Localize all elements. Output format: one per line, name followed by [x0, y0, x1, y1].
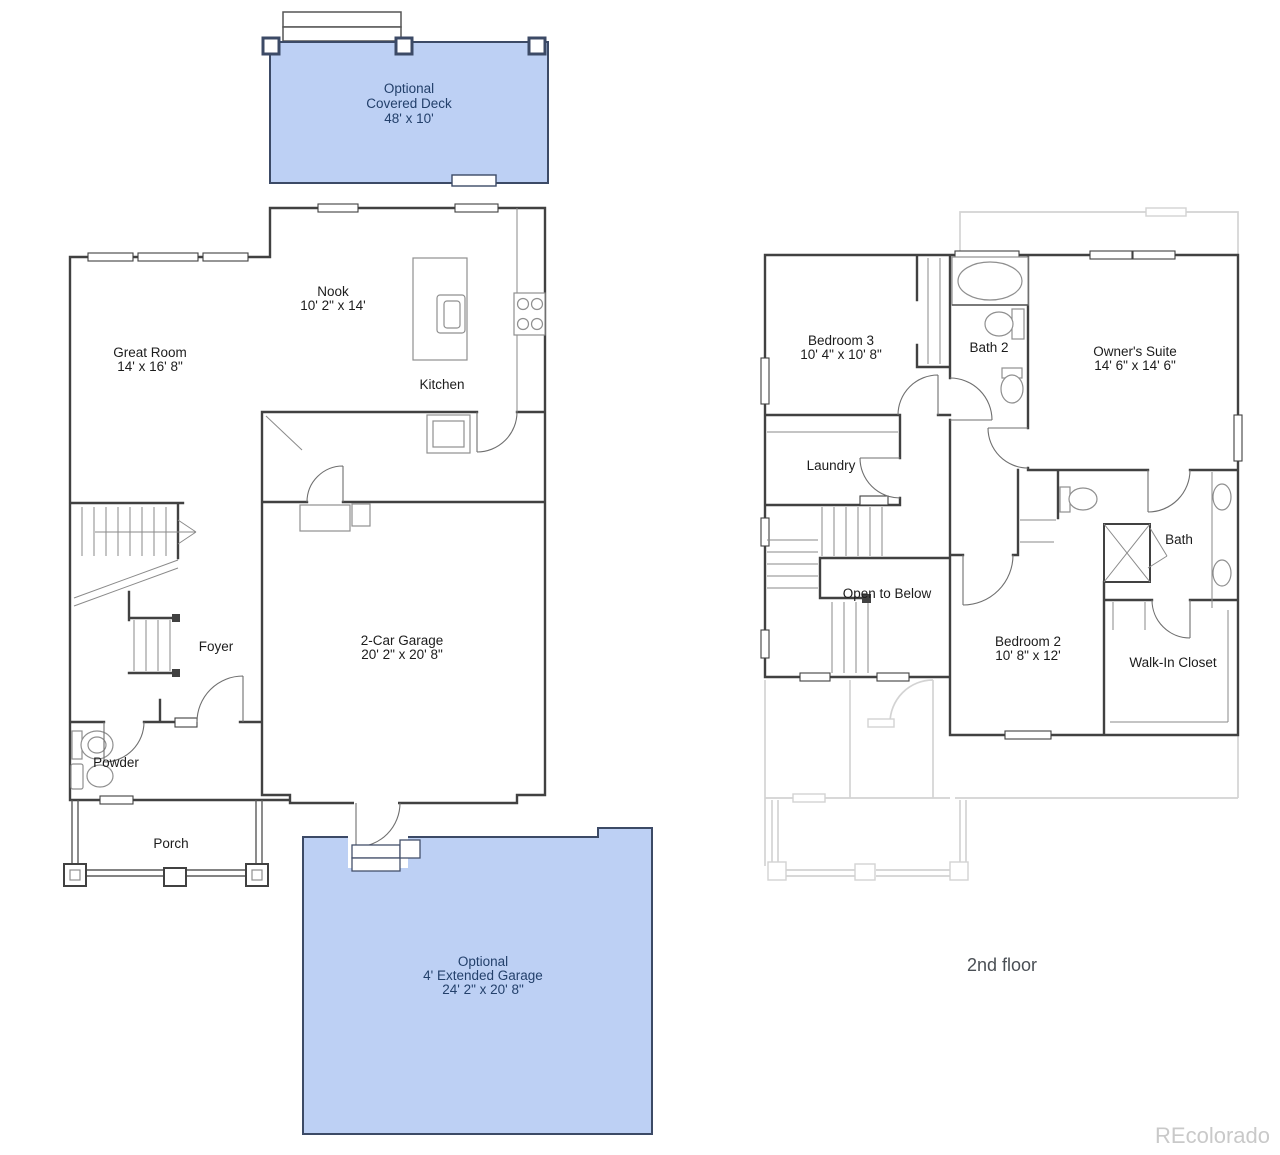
mud-hall [266, 415, 470, 531]
bedroom2-dims: 10' 8" x 12' [995, 648, 1061, 663]
second-floor-caption: 2nd floor [967, 955, 1037, 975]
garage-step [400, 840, 420, 858]
walk-in-closet-door-swing [1152, 600, 1190, 638]
deck-post-icon [263, 38, 279, 54]
watermark: REcolorado [1155, 1123, 1270, 1148]
bathtub-icon [952, 257, 1028, 305]
porch-post-icon [246, 864, 268, 886]
mud-door-swing [477, 412, 517, 452]
window-icon [877, 673, 909, 681]
window-icon [761, 518, 769, 546]
foyer-label: Foyer [199, 639, 234, 654]
owners-suite-label: Owner's Suite [1093, 344, 1177, 359]
owners-suite-dims: 14' 6" x 14' 6" [1094, 358, 1176, 373]
window-icon [1133, 251, 1175, 259]
first-floor-doors [104, 412, 517, 762]
first-floor-plan: Optional Covered Deck 48' x 10' Great Ro… [64, 12, 652, 1134]
sink-icon [71, 764, 83, 789]
porch-label: Porch [153, 836, 188, 851]
garage-dims: 20' 2" x 20' 8" [361, 647, 443, 662]
floor-plan-image: Optional Covered Deck 48' x 10' Great Ro… [0, 0, 1280, 1155]
laundry-threshold [860, 496, 888, 505]
garage-label: 2-Car Garage [361, 633, 444, 648]
bedroom2-label: Bedroom 2 [995, 634, 1061, 649]
window-icon [800, 673, 830, 681]
laundry-label: Laundry [807, 458, 856, 473]
porch-post-icon [64, 864, 86, 886]
water-heater-icon [352, 504, 370, 526]
deck-label-line1: Optional [384, 81, 434, 96]
extended-garage-dims: 24' 2" x 20' 8" [442, 982, 524, 997]
bath2-door-swing [950, 378, 992, 420]
bath-label: Bath [1165, 532, 1193, 547]
ghost-porch-step [855, 864, 875, 880]
bath2-fixtures [952, 257, 1028, 403]
window-icon [1090, 251, 1132, 259]
owners-bath-door-swing [1148, 470, 1190, 512]
deck-post-icon [396, 38, 412, 54]
bedroom3-label: Bedroom 3 [808, 333, 874, 348]
deck-stairs [283, 12, 401, 41]
sink-icon [1213, 484, 1231, 510]
deck-label-line2: Covered Deck [366, 96, 452, 111]
ghost-porch-post [768, 862, 786, 880]
window-icon [1005, 731, 1051, 739]
window-icon [203, 253, 248, 261]
front-door-threshold [175, 718, 197, 727]
laundry-door-swing [860, 458, 900, 498]
bedroom2-door-swing [963, 555, 1013, 605]
shower-fixture [1104, 524, 1167, 582]
furnace-icon [300, 505, 350, 531]
window-icon [761, 358, 769, 404]
extended-garage-label-line2: 4' Extended Garage [423, 968, 543, 983]
front-door-swing [197, 676, 243, 722]
stair-direction-arrow [95, 520, 196, 544]
second-floor-plan: Bedroom 3 10' 4" x 10' 8" Bath 2 Owner's… [761, 208, 1242, 975]
nook-dims: 10' 2" x 14' [300, 298, 366, 313]
owners-suite-door-swing [988, 428, 1028, 468]
sink-icon [1213, 560, 1231, 586]
toilet-icon [1012, 309, 1024, 339]
powder-label: Powder [93, 755, 139, 770]
window-icon [318, 204, 358, 212]
window-icon [88, 253, 133, 261]
nook-label: Nook [317, 284, 349, 299]
window-icon [1234, 415, 1242, 461]
floor-plan-svg: Optional Covered Deck 48' x 10' Great Ro… [0, 0, 1280, 1155]
bedroom3-door-swing [898, 375, 938, 415]
kitchen-label: Kitchen [419, 377, 464, 392]
window-icon [138, 253, 198, 261]
walk-in-closet-label: Walk-In Closet [1129, 655, 1217, 670]
great-room-dims: 14' x 16' 8" [117, 359, 183, 374]
window-icon [455, 204, 498, 212]
open-to-below-label: Open to Below [843, 586, 932, 601]
garage-door-swing [307, 466, 343, 502]
deck-post-icon [529, 38, 545, 54]
porch-step [164, 868, 186, 886]
ghost-porch-post [950, 862, 968, 880]
bedroom3-dims: 10' 4" x 10' 8" [800, 347, 882, 362]
extended-garage-label-line1: Optional [458, 954, 508, 969]
stairs-first-floor [74, 507, 196, 677]
deck-dims: 48' x 10' [384, 111, 433, 126]
window-icon [100, 796, 133, 804]
window-icon [761, 630, 769, 658]
bath2-label: Bath 2 [969, 340, 1008, 355]
great-room-label: Great Room [113, 345, 187, 360]
